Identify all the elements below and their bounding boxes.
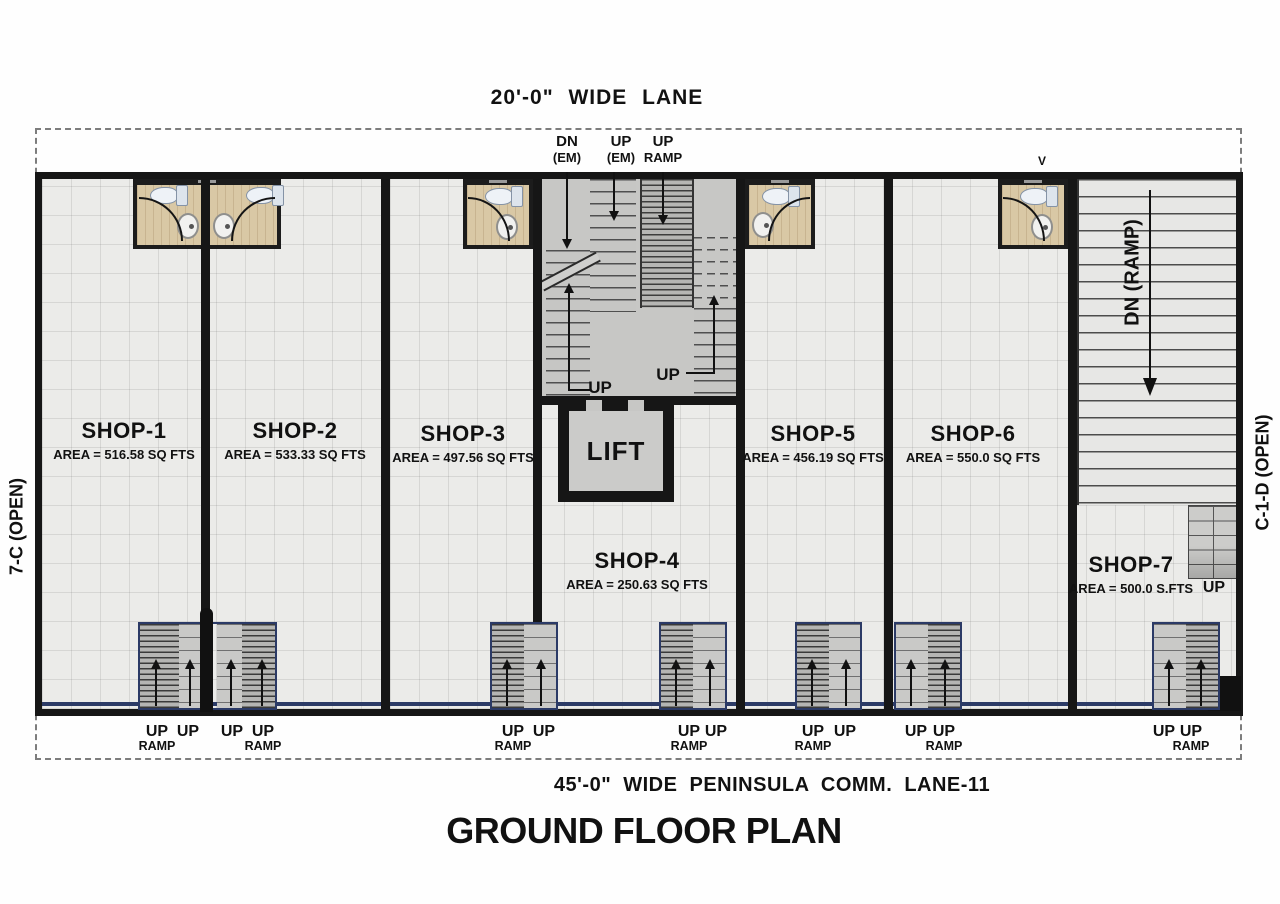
- up-em-arrow: [613, 172, 615, 212]
- shop4-label: SHOP-4AREA = 250.63 SQ FTS: [542, 548, 732, 592]
- entry-block-shop3: [490, 622, 558, 710]
- top-lane-label: 20'-0" WIDE LANE: [397, 86, 797, 110]
- entry-label: UP: [522, 724, 566, 739]
- lift-door-gap-left: [586, 400, 602, 411]
- page-title: GROUND FLOOR PLAN: [394, 810, 894, 852]
- lift-shaft: LIFT: [558, 400, 674, 502]
- entry-label: UP: [823, 724, 867, 739]
- shop6-label: SHOP-6AREA = 550.0 SQ FTS: [878, 421, 1068, 465]
- entry-up-arrow: [189, 668, 191, 706]
- shop3-label: SHOP-3AREA = 497.56 SQ FTS: [368, 421, 558, 465]
- entry-center-wall: [200, 608, 213, 712]
- entry-up-arrow: [811, 668, 813, 706]
- dn-em-arrow: [566, 172, 568, 240]
- entry-up-arrow: [261, 668, 263, 706]
- entry-up-arrow: [506, 668, 508, 706]
- entry-label: UP: [694, 724, 738, 739]
- entry-up-arrow: [1200, 668, 1202, 706]
- shop7-label: SHOP-7AREA = 500.0 S.FTS: [1036, 552, 1226, 596]
- entry-label: UPRAMP: [922, 724, 966, 754]
- dn-ramp-arrow-line: [1149, 190, 1151, 380]
- entry-block-shop7: [1152, 622, 1220, 710]
- left-open-label: 7-C (OPEN): [7, 467, 28, 587]
- entry-up-arrow: [910, 668, 912, 706]
- core-up-right-leader: [686, 372, 713, 374]
- shop2-label: SHOP-2AREA = 533.33 SQ FTS: [200, 418, 390, 462]
- lift-label: LIFT: [587, 436, 646, 467]
- entry-up-arrow: [675, 668, 677, 706]
- dn-ramp-arrowhead: [1143, 378, 1157, 396]
- wall-shop6-ramp: [1068, 172, 1077, 716]
- entry-up-arrow: [1168, 668, 1170, 706]
- core-up-left-arrow: [568, 292, 570, 391]
- ground-floor-plan: 20'-0" WIDE LANE 7-C (OPEN) C-1-D (OPEN)…: [0, 0, 1280, 904]
- entry-block-shop4: [659, 622, 727, 710]
- dn-ramp-label: DN (RAMP): [1122, 202, 1145, 344]
- core-up-right-label: UP: [648, 365, 688, 385]
- entry-up-arrow: [540, 668, 542, 706]
- entry-up-arrow: [155, 668, 157, 706]
- up-ramp-arrow: [662, 172, 664, 216]
- shop1-label: SHOP-1AREA = 516.58 SQ FTS: [29, 418, 219, 462]
- core-up-left-label: UP: [580, 378, 620, 398]
- right-open-label: C-1-D (OPEN): [1253, 403, 1274, 543]
- core-up-right-arrow: [713, 304, 715, 374]
- entry-up-arrow: [944, 668, 946, 706]
- bottom-lane-label: 45'-0" WIDE PENINSULA COMM. LANE-11: [472, 774, 1072, 797]
- entry-block-shop5: [795, 622, 862, 710]
- entry-up-arrow: [230, 668, 232, 706]
- entry-up-arrow: [709, 668, 711, 706]
- entry-label: UPRAMP: [1169, 724, 1213, 754]
- entry-label: UP: [166, 724, 210, 739]
- entry-label: UPRAMP: [241, 724, 285, 754]
- entry-block-shop6: [894, 622, 962, 710]
- entry-up-arrow: [845, 668, 847, 706]
- lift-door-gap-right: [628, 400, 644, 411]
